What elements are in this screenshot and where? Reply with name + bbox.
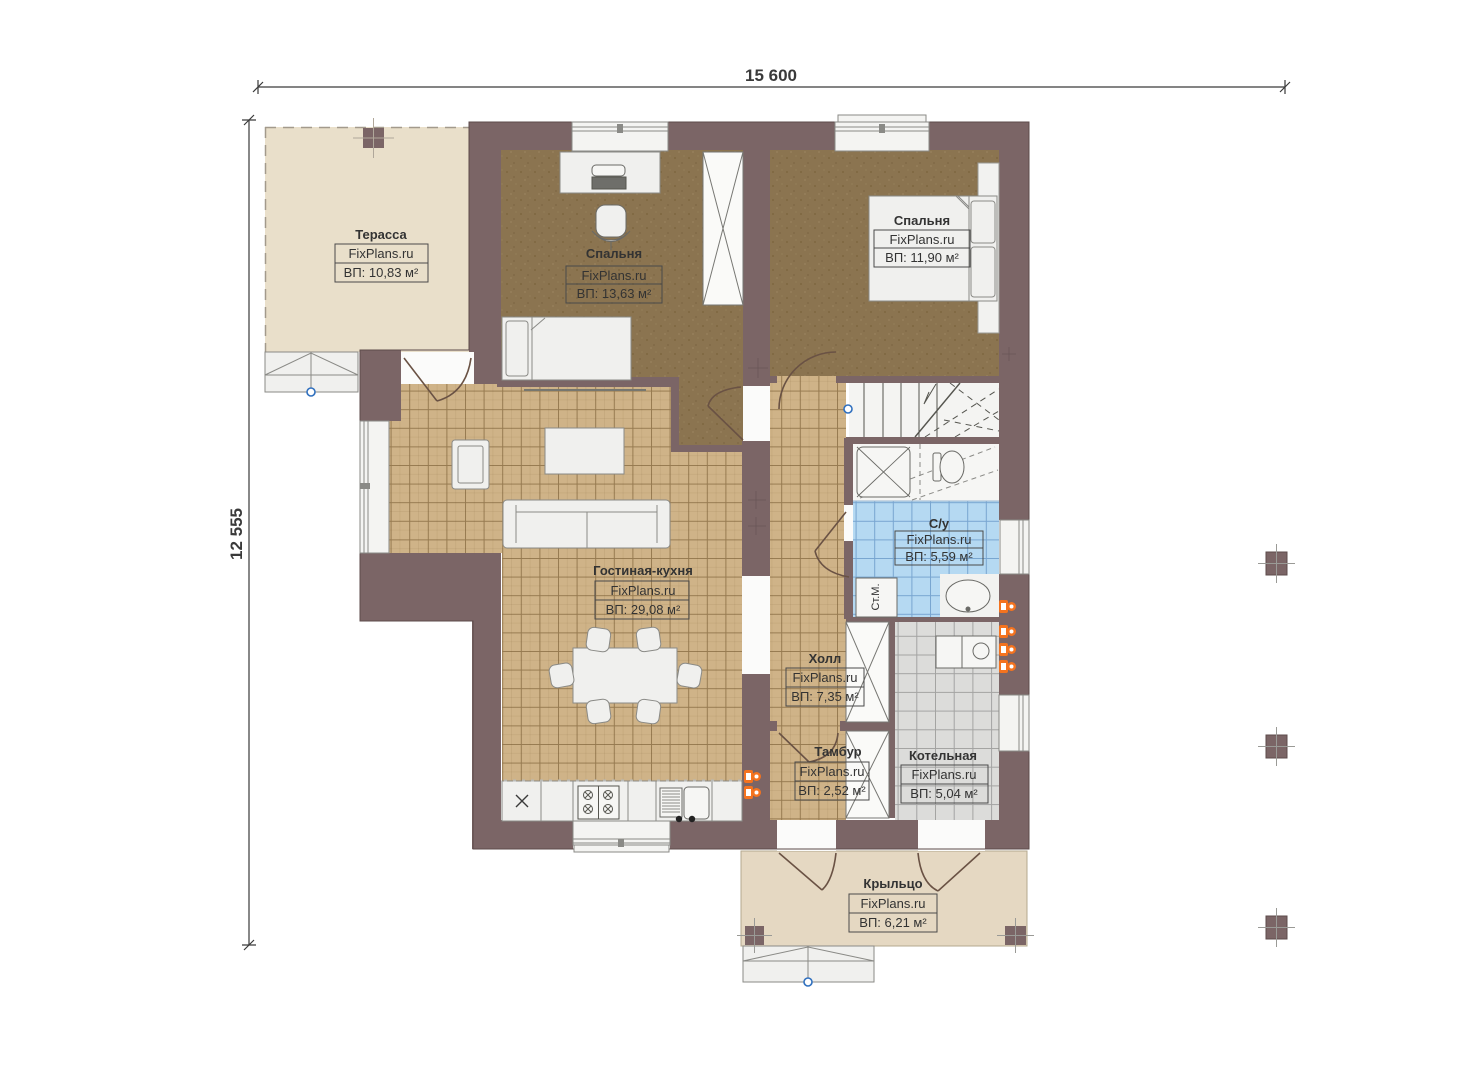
svg-text:ВП: 29,08 м²: ВП: 29,08 м² (606, 602, 681, 617)
svg-text:ВП: 13,63 м²: ВП: 13,63 м² (577, 286, 652, 301)
svg-text:FixPlans.ru: FixPlans.ru (792, 670, 857, 685)
svg-text:Терасса: Терасса (355, 227, 407, 242)
svg-text:FixPlans.ru: FixPlans.ru (889, 232, 954, 247)
svg-text:Гостиная-кухня: Гостиная-кухня (593, 563, 693, 578)
svg-text:ВП: 7,35 м²: ВП: 7,35 м² (791, 689, 859, 704)
svg-text:FixPlans.ru: FixPlans.ru (610, 583, 675, 598)
svg-text:FixPlans.ru: FixPlans.ru (581, 268, 646, 283)
svg-text:FixPlans.ru: FixPlans.ru (348, 246, 413, 261)
svg-text:Тамбур: Тамбур (814, 744, 861, 759)
svg-text:С/у: С/у (929, 516, 950, 531)
svg-text:12 555: 12 555 (227, 508, 246, 560)
svg-text:ВП: 5,59 м²: ВП: 5,59 м² (905, 549, 973, 564)
svg-text:ВП: 6,21 м²: ВП: 6,21 м² (859, 915, 927, 930)
svg-text:ВП: 11,90 м²: ВП: 11,90 м² (885, 250, 959, 265)
svg-text:Котельная: Котельная (909, 748, 977, 763)
svg-text:FixPlans.ru: FixPlans.ru (860, 896, 925, 911)
svg-text:Спальня: Спальня (586, 246, 642, 261)
svg-text:ВП: 10,83 м²: ВП: 10,83 м² (344, 265, 419, 280)
svg-text:FixPlans.ru: FixPlans.ru (906, 532, 971, 547)
svg-text:FixPlans.ru: FixPlans.ru (911, 767, 976, 782)
svg-text:Крыльцо: Крыльцо (863, 876, 922, 891)
svg-text:ВП: 2,52 м²: ВП: 2,52 м² (798, 783, 866, 798)
svg-text:Спальня: Спальня (894, 213, 950, 228)
svg-text:FixPlans.ru: FixPlans.ru (799, 764, 864, 779)
svg-text:15 600: 15 600 (745, 66, 797, 85)
svg-text:Холл: Холл (809, 651, 842, 666)
svg-text:ВП: 5,04 м²: ВП: 5,04 м² (910, 786, 978, 801)
svg-text:Ст.М.: Ст.М. (870, 583, 882, 610)
